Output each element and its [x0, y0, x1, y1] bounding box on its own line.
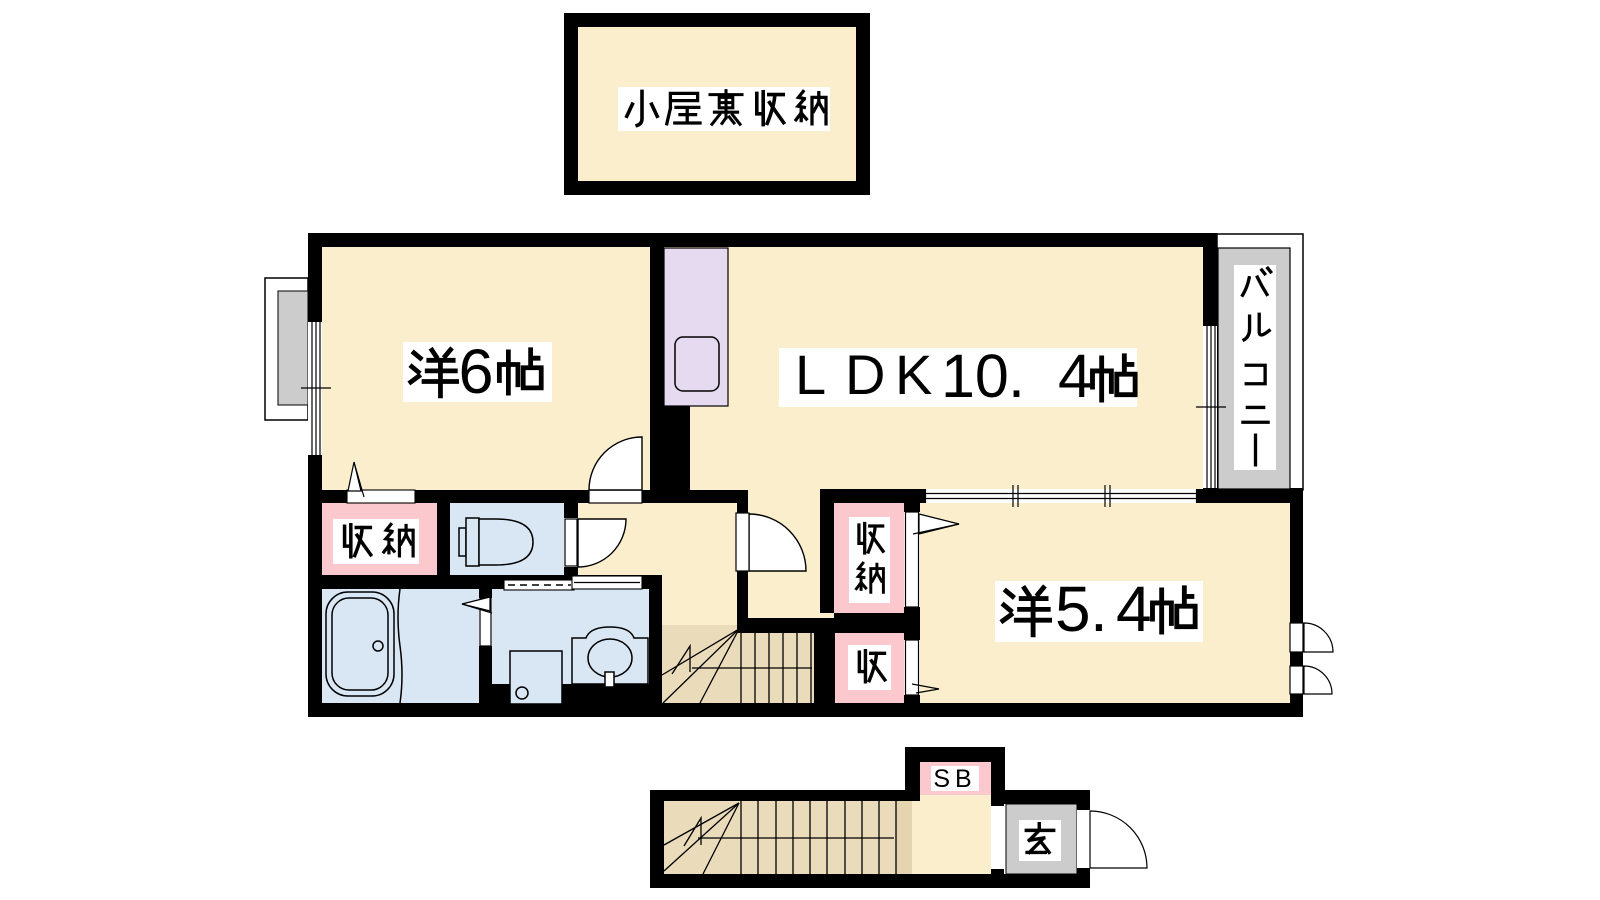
svg-text:6: 6 [458, 337, 493, 407]
svg-text:K: K [895, 343, 932, 406]
svg-text:.: . [1090, 573, 1108, 645]
svg-text:SB: SB [933, 765, 976, 793]
svg-text:4: 4 [1058, 342, 1092, 410]
svg-text:10: 10 [941, 342, 1009, 410]
svg-text:4: 4 [1116, 573, 1152, 645]
svg-text:D: D [845, 343, 885, 406]
svg-text:5: 5 [1055, 573, 1091, 645]
svg-text:.: . [1008, 342, 1025, 410]
svg-text:L: L [795, 343, 826, 406]
